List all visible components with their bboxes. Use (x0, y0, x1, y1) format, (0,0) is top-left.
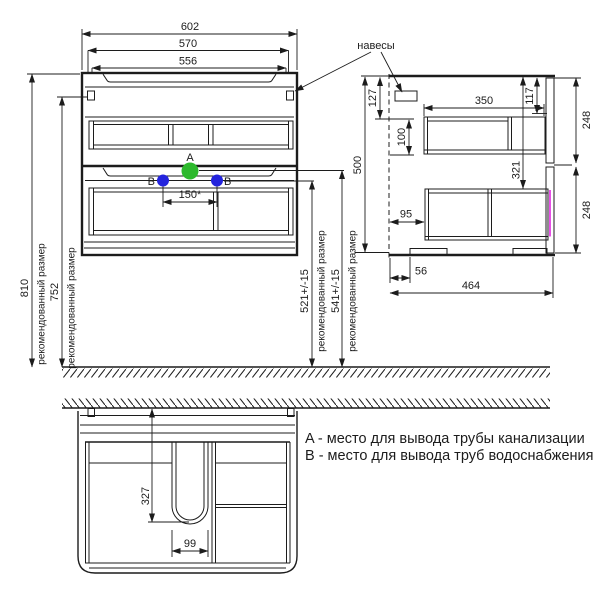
left-height-dimensions: 810 рекомендованный размер 752 рекомендо… (19, 74, 87, 369)
dim-cutout-width: 99 (184, 538, 196, 550)
floor-line (62, 367, 550, 378)
dim-lower-front-height: 248 (581, 201, 593, 219)
technical-drawing-page: A B B 602 570 556 810 рекомендованный ра… (0, 0, 600, 600)
dim-width-overall: 602 (181, 21, 199, 33)
dim-leg-back-offset: 56 (415, 266, 427, 278)
side-dimensions: 127 100 350 117 321 248 248 95 56 464 (367, 77, 593, 298)
water-marker-b-left (157, 175, 169, 187)
recommended-size-label-1: рекомендованный размер (37, 243, 48, 365)
hanger-right (287, 91, 294, 100)
marker-b-label-left: B (148, 176, 155, 188)
upper-drawer-side (424, 117, 545, 154)
dim-water-outlet-height: 521+/-15 (299, 269, 311, 313)
hanger-left (88, 91, 95, 100)
hangers-callout: навесы (295, 40, 402, 92)
dim-lower-drawer-top-offset: 321 (510, 161, 522, 179)
drain-marker-a (182, 163, 199, 180)
hangers-label: навесы (357, 40, 395, 52)
basin-top-recess (103, 74, 276, 82)
dim-width-inner: 570 (179, 38, 197, 50)
dim-cutout-depth: 327 (140, 487, 152, 505)
pipe-outlet-markers: A B B (148, 152, 232, 188)
outlet-spacing-dimension: 150* (163, 187, 217, 208)
dim-upper-front-height: 248 (581, 111, 593, 129)
dim-cabinet-height: 500 (352, 156, 364, 174)
recommended-size-label-3: рекомендованный размер (317, 230, 328, 352)
dim-hanger-top-offset: 127 (367, 89, 379, 107)
hanger-side (395, 91, 417, 101)
bottom-view-dimensions: 327 99 (140, 409, 208, 557)
upper-front-panel (546, 78, 554, 163)
legend-line-b: B - место для вывода труб водоснабжения (305, 448, 593, 464)
dim-hanger-drop: 100 (396, 128, 408, 146)
dim-overall-depth: 464 (462, 280, 480, 292)
lower-drawer-side (425, 189, 548, 240)
siphon-cutout-inner (176, 442, 204, 520)
dim-drawer-depth: 350 (475, 95, 493, 107)
dim-height-hangers: 752 (49, 283, 61, 301)
legend: A - место для вывода трубы канализации B… (305, 431, 593, 464)
dim-top-front-offset: 117 (524, 87, 536, 105)
dim-width-basin: 556 (179, 56, 197, 68)
marker-a-label: A (186, 152, 194, 164)
wall-line (62, 399, 550, 409)
recommended-size-label-4: рекомендованный размер (348, 230, 359, 352)
legend-line-a: A - место для вывода трубы канализации (305, 431, 585, 447)
water-marker-b-right (211, 175, 223, 187)
recommended-size-label-2: рекомендованный размер (67, 247, 78, 369)
dim-drain-outlet-height: 541+/-15 (330, 269, 342, 313)
marker-b-label-right: B (224, 176, 231, 188)
front-top-dimensions: 602 570 556 (82, 21, 297, 73)
dim-outlet-spacing: 150* (179, 189, 202, 201)
dim-wall-gap: 95 (400, 209, 412, 221)
dim-height-recommended: 810 (19, 279, 31, 297)
vanity-cabinet-drawing: A B B 602 570 556 810 рекомендованный ра… (0, 0, 600, 600)
